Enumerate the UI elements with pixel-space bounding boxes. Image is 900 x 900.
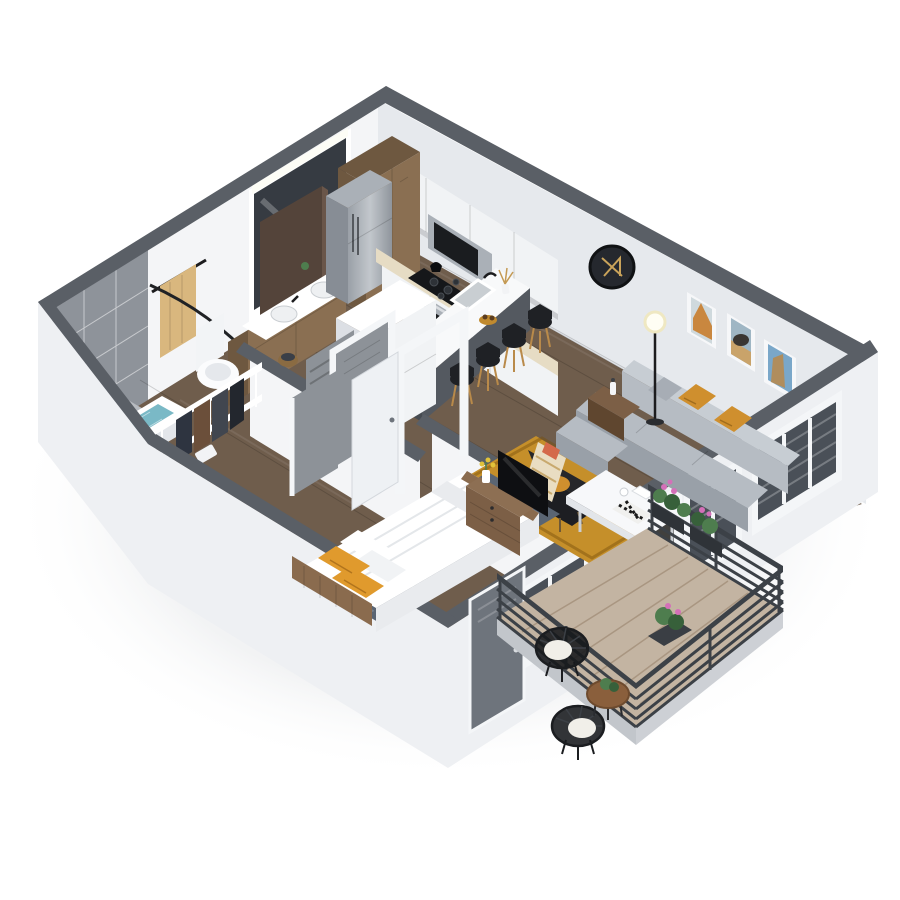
chair-cushion [568, 718, 596, 738]
vanity-plant-1 [301, 262, 309, 270]
fruit-bowl [479, 315, 497, 325]
floorplan-svg [0, 0, 900, 900]
sink-left [271, 306, 297, 322]
wine-bottle [610, 382, 616, 395]
round-mirror [590, 246, 634, 288]
floorplan-render [0, 0, 900, 900]
door-handle [390, 418, 395, 423]
coffee-mug [620, 488, 628, 496]
chair-cushion [544, 640, 572, 660]
